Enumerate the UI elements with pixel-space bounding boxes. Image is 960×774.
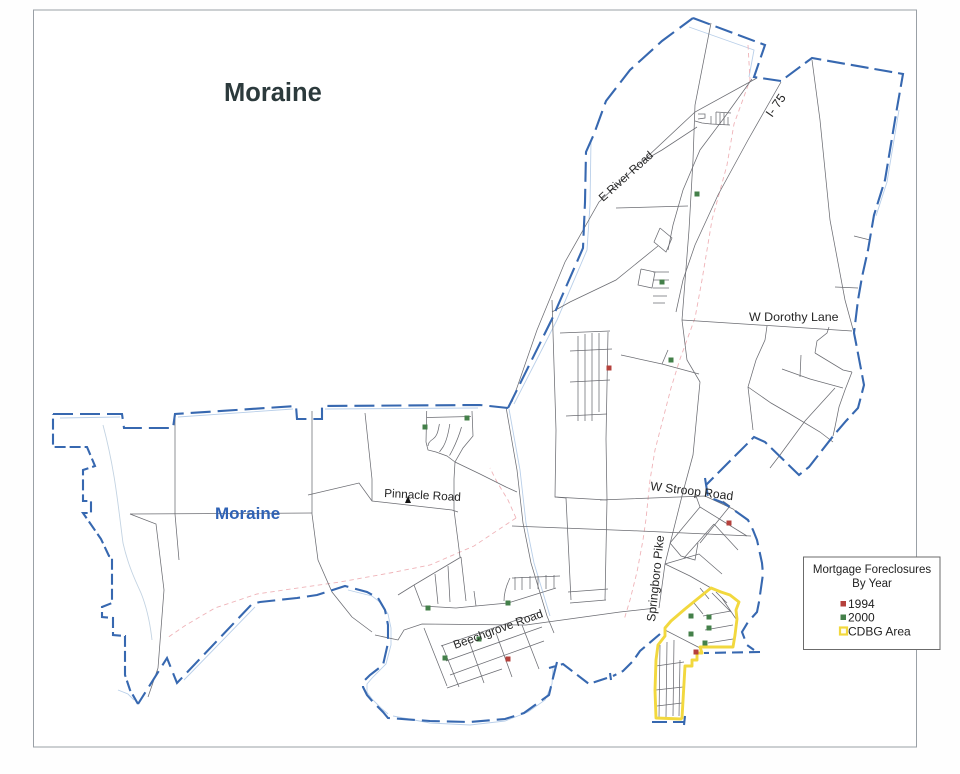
svg-text:1994: 1994	[848, 597, 875, 611]
svg-text:Moraine: Moraine	[224, 79, 322, 107]
svg-text:W Dorothy Lane: W Dorothy Lane	[749, 310, 839, 324]
svg-text:Mortgage Foreclosures: Mortgage Foreclosures	[813, 564, 931, 576]
svg-text:Moraine: Moraine	[215, 504, 280, 523]
svg-text:CDBG Area: CDBG Area	[848, 625, 911, 639]
svg-text:2000: 2000	[848, 611, 875, 625]
svg-text:By Year: By Year	[852, 578, 892, 590]
